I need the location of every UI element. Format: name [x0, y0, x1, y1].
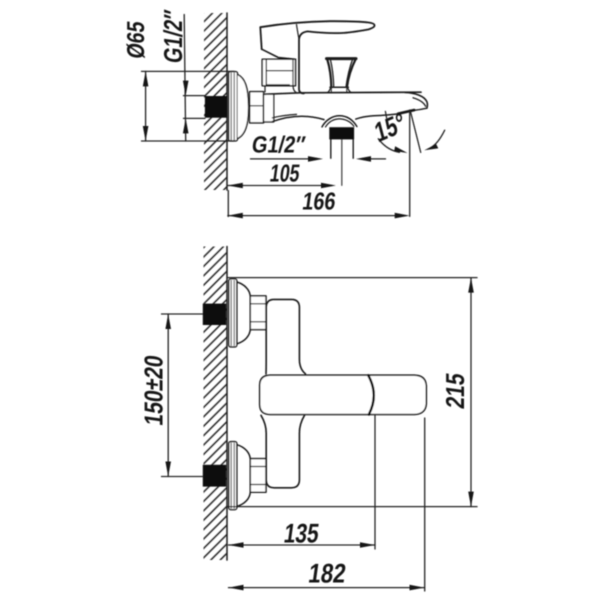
svg-text:Ø65: Ø65: [123, 20, 150, 61]
svg-text:215: 215: [440, 371, 470, 410]
svg-text:182: 182: [307, 558, 348, 589]
svg-text:G1/2″: G1/2″: [250, 133, 307, 159]
svg-text:135: 135: [282, 518, 321, 549]
svg-text:G1/2″: G1/2″: [158, 8, 188, 65]
svg-text:105: 105: [268, 161, 301, 188]
svg-text:150±20: 150±20: [139, 353, 169, 427]
svg-text:166: 166: [301, 189, 338, 216]
